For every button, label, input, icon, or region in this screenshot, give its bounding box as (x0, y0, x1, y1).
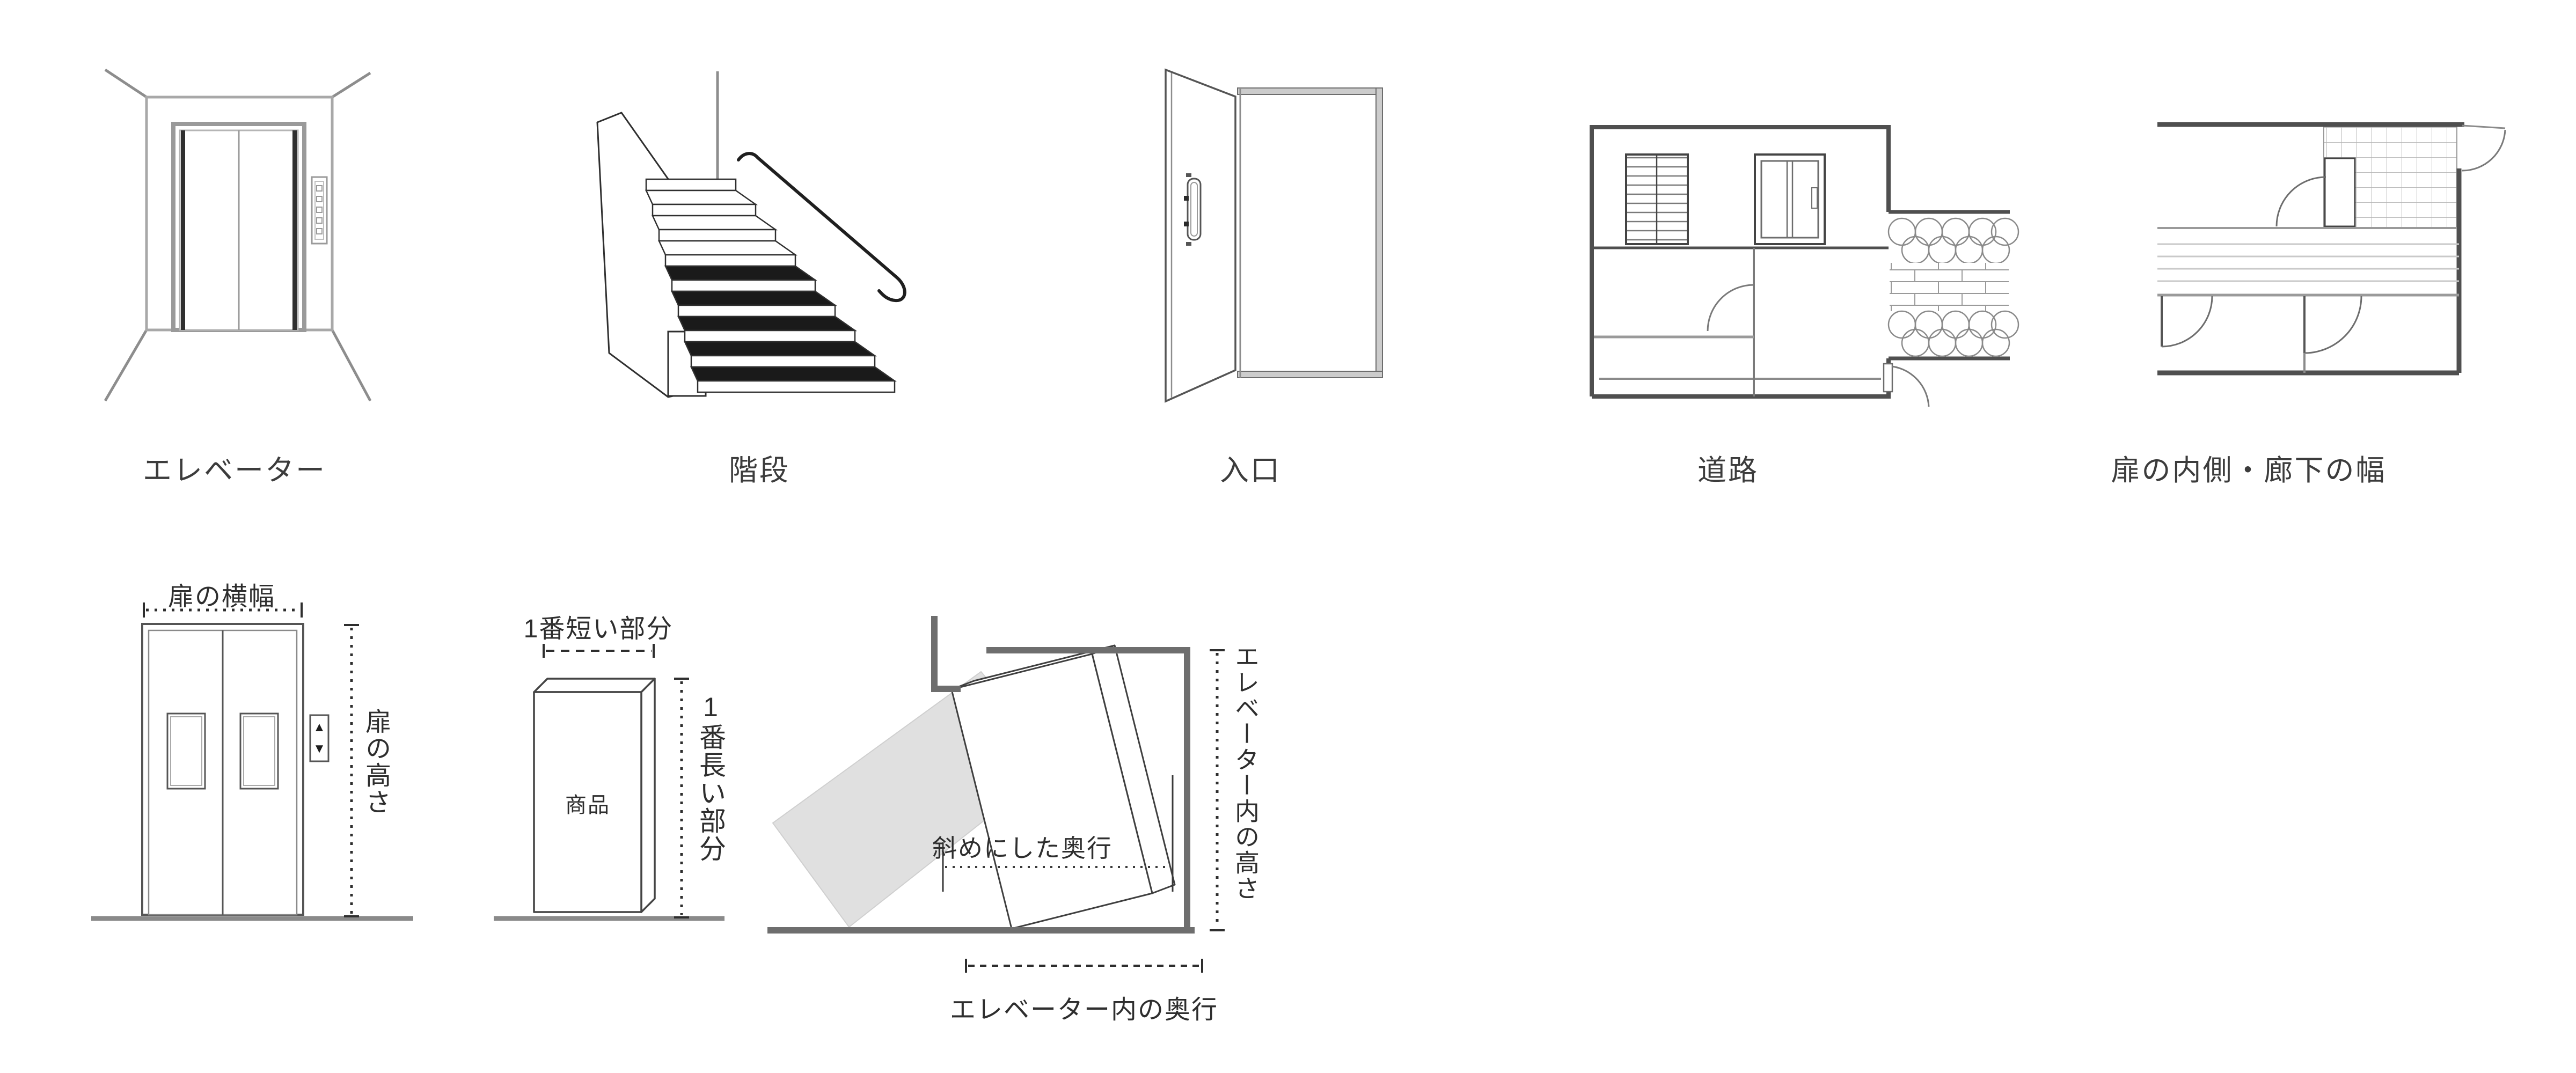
measurement-guide-canvas: エレベーター (0, 0, 2576, 1073)
hallway-corridor-floorboards (2157, 244, 2459, 281)
figure-caption-hallway: 扉の内側・廊下の幅 (2088, 446, 2410, 489)
hallway-inner-door-leaf (2325, 158, 2355, 226)
inner-height-label: エレベーター内の高さ (1228, 644, 1263, 901)
elevator-front-illustration (86, 59, 386, 424)
figure-caption-stairs: 階段 (625, 446, 894, 489)
product-shortest-label: 1番短い部分 (464, 607, 733, 645)
road-plan-elevator (1755, 155, 1825, 244)
road-stones-top (1889, 218, 2018, 263)
elevator-interior-illustration (762, 606, 1256, 982)
figure-hallway (2147, 113, 2522, 392)
inner-depth-label: エレベーター内の奥行 (923, 988, 1245, 1026)
road-plan-door-arc (1708, 285, 1754, 331)
product-longest-label: 1番長い部分 (691, 692, 730, 863)
elevator-door-edge-left (181, 130, 185, 330)
hallway-room-door-mid (2304, 296, 2361, 353)
leaning-box (952, 645, 1175, 929)
road-plan-stairs (1626, 155, 1688, 244)
door-height-label: 扉の高さ (356, 708, 394, 815)
road-plan-entry-door (1884, 364, 1929, 407)
figure-elevator-interior (762, 606, 1256, 982)
figure-stairs (569, 64, 923, 418)
hallway-entry-door-leaf (2462, 126, 2505, 128)
inner-depth-dimension (966, 959, 1202, 973)
entrance-door-frame (1238, 88, 1382, 378)
figure-caption-road: 道路 (1594, 446, 1862, 489)
elevator-down-button-icon: ▼ (310, 743, 328, 755)
figure-caption-elevator: エレベーター (95, 446, 374, 489)
road-brick-area (1890, 263, 2009, 311)
road-stones-bottom (1889, 311, 2018, 356)
door-width-label: 扉の横幅 (87, 575, 356, 613)
hallway-entry-door-arc (2462, 130, 2505, 171)
elevator-door-edge-right (292, 130, 297, 330)
figure-caption-entrance: 入口 (1116, 446, 1385, 489)
product-longest-dimension (674, 679, 689, 917)
road-floorplan-illustration (1572, 80, 2045, 413)
figure-elevator (86, 59, 386, 424)
figure-road (1572, 80, 2045, 413)
elevator-up-button-icon: ▲ (310, 721, 328, 734)
product-name-label: 商品 (534, 788, 641, 819)
hallway-room-door-left (2162, 296, 2212, 347)
stairs-illustration (569, 64, 923, 418)
hallway-floorplan-illustration (2147, 113, 2522, 392)
diagonal-depth-label: 斜めにした奥行 (888, 829, 1157, 864)
figure-entrance (1143, 62, 1395, 410)
inner-height-dimension (1210, 650, 1225, 930)
product-shortest-dimension (544, 644, 654, 658)
elevator-call-panel (312, 177, 327, 244)
hallway-inner-door-arc (2277, 177, 2326, 226)
entrance-door-illustration (1143, 62, 1395, 410)
